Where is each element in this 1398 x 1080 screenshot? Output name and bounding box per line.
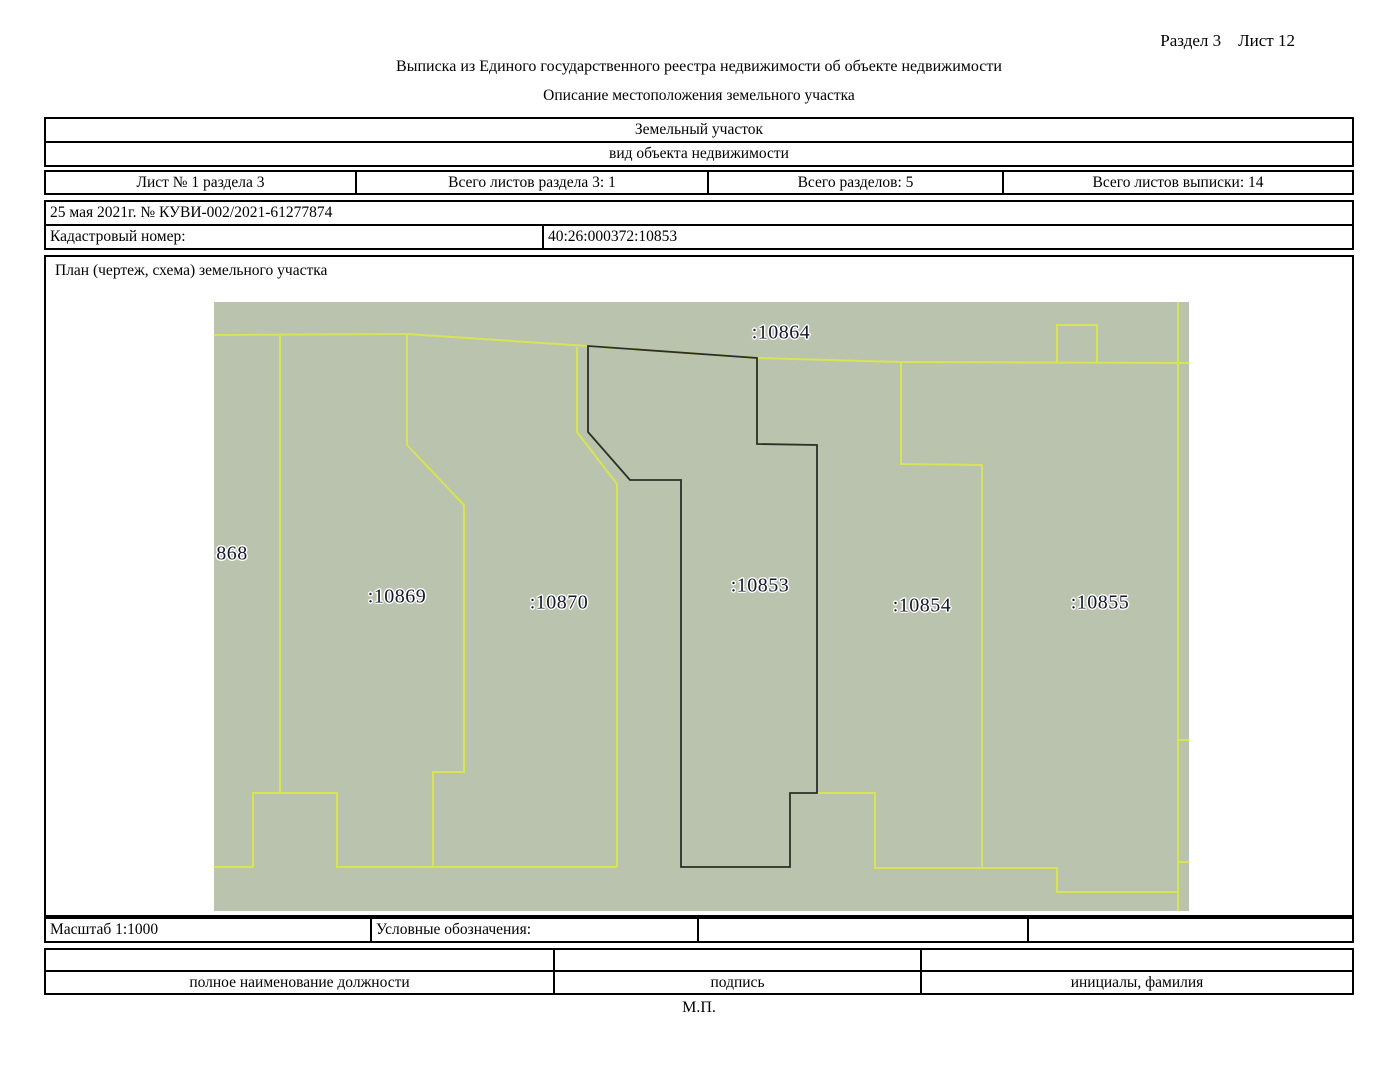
- map-background: [214, 302, 1189, 911]
- cadastral-number-label: Кадастровый номер:: [46, 226, 542, 248]
- cadastral-map: :10864868:10869:10870:10853:10854:10855: [214, 302, 1189, 911]
- legend-label: Условные обозначения:: [370, 919, 697, 941]
- signature-column-header: подпись: [553, 972, 920, 993]
- parcel-label: 868: [216, 543, 248, 566]
- sections-total-cell: Всего разделов: 5: [707, 172, 1002, 193]
- name-input-cell: [920, 950, 1352, 970]
- object-type-value: Земельный участок: [46, 119, 1352, 141]
- section-sheet-header: Раздел 3 Лист 12: [1160, 31, 1295, 51]
- date-and-number: 25 мая 2021г. № КУВИ-002/2021-61277874: [46, 202, 1352, 226]
- sheet-number-cell: Лист № 1 раздела 3: [46, 172, 355, 193]
- document-subtitle: Описание местоположения земельного участ…: [0, 87, 1398, 105]
- parcel-label: :10855: [1071, 592, 1130, 615]
- document-title: Выписка из Единого государственного реес…: [0, 58, 1398, 76]
- extract-sheets-total-cell: Всего листов выписки: 14: [1002, 172, 1352, 193]
- section-sheets-total-cell: Всего листов раздела 3: 1: [355, 172, 707, 193]
- cadastral-number-value: 40:26:000372:10853: [542, 226, 1352, 248]
- signature-table: полное наименование должности подпись ин…: [44, 948, 1354, 995]
- cadastral-map-drawing: [214, 302, 1189, 911]
- name-column-header: инициалы, фамилия: [920, 972, 1352, 993]
- parcel-label: :10864: [752, 322, 811, 345]
- parcel-label: :10870: [530, 592, 589, 615]
- cadastral-table: 25 мая 2021г. № КУВИ-002/2021-61277874 К…: [44, 200, 1354, 250]
- scale-legend-row: Масштаб 1:1000 Условные обозначения:: [44, 917, 1354, 943]
- legend-cell-2: [1027, 919, 1352, 941]
- position-column-header: полное наименование должности: [46, 972, 553, 993]
- plan-title: План (чертеж, схема) земельного участка: [46, 257, 1352, 280]
- scale-label: Масштаб 1:1000: [46, 919, 370, 941]
- signature-input-cell: [553, 950, 920, 970]
- parcel-label: :10853: [731, 575, 790, 598]
- object-type-caption: вид объекта недвижимости: [46, 141, 1352, 165]
- object-type-table: Земельный участок вид объекта недвижимос…: [44, 117, 1354, 167]
- stamp-place-label: М.П.: [44, 999, 1354, 1017]
- sheets-info-table: Лист № 1 раздела 3 Всего листов раздела …: [44, 170, 1354, 195]
- legend-cell-1: [697, 919, 1027, 941]
- parcel-label: :10869: [368, 586, 427, 609]
- plan-section: План (чертеж, схема) земельного участка …: [44, 255, 1354, 917]
- position-input-cell: [46, 950, 553, 970]
- parcel-label: :10854: [893, 595, 952, 618]
